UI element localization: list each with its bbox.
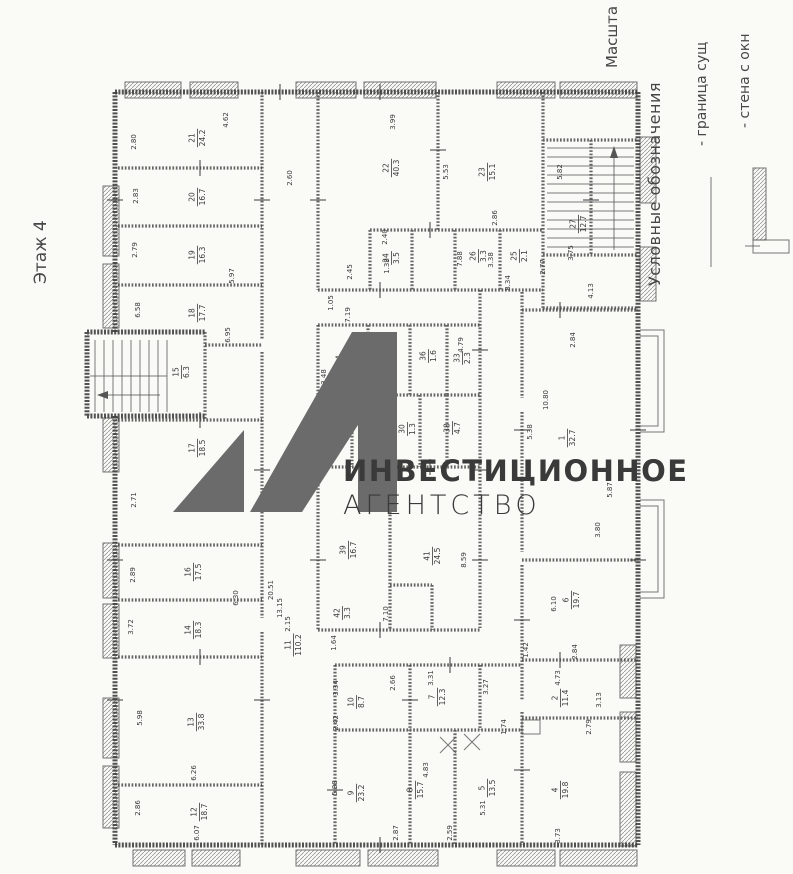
svg-text:12.3: 12.3 bbox=[438, 688, 447, 705]
dimension-label: 2.86 bbox=[491, 210, 499, 226]
room-label: 712.3 bbox=[428, 688, 448, 706]
dimension-label: 5.38 bbox=[526, 424, 534, 440]
room-label: 361.6 bbox=[419, 349, 439, 363]
dimension-label: 3.13 bbox=[595, 692, 603, 708]
room-label: 252.1 bbox=[510, 249, 530, 263]
dimension-label: 4.62 bbox=[222, 112, 230, 128]
room-label: 2016.7 bbox=[188, 188, 208, 206]
watermark-agency-subtitle: АГЕНТСТВО bbox=[343, 490, 541, 521]
svg-text:30: 30 bbox=[398, 424, 407, 434]
svg-text:5: 5 bbox=[478, 785, 487, 790]
svg-text:16.7: 16.7 bbox=[349, 541, 358, 558]
svg-text:17.7: 17.7 bbox=[198, 304, 207, 321]
dimension-label: 2.59 bbox=[446, 825, 454, 841]
dimension-label: 3.34 bbox=[332, 680, 340, 696]
svg-text:33: 33 bbox=[453, 353, 462, 363]
dimension-label: 2.66 bbox=[389, 675, 397, 691]
svg-text:39: 39 bbox=[339, 545, 348, 555]
dimension-label: 3.80 bbox=[594, 522, 602, 538]
dimension-label: 5.98 bbox=[136, 710, 144, 726]
dimension-label: 7.10 bbox=[382, 606, 390, 622]
dimension-label: 2.79 bbox=[585, 719, 593, 735]
svg-text:19.8: 19.8 bbox=[561, 781, 570, 798]
room-label: 263.3 bbox=[469, 249, 489, 263]
dimension-label: 2.84 bbox=[571, 644, 579, 660]
svg-text:16.7: 16.7 bbox=[198, 188, 207, 205]
dimension-label: 1.74 bbox=[500, 719, 508, 735]
svg-text:4.7: 4.7 bbox=[453, 422, 462, 434]
svg-text:2.3: 2.3 bbox=[463, 352, 472, 364]
room-label: 332.3 bbox=[453, 351, 473, 365]
svg-text:11.4: 11.4 bbox=[561, 689, 570, 706]
dimension-label: 3.38 bbox=[487, 252, 495, 268]
room-label: 156.3 bbox=[172, 365, 192, 379]
svg-text:6: 6 bbox=[562, 597, 571, 602]
dimension-label: 5.31 bbox=[479, 800, 487, 816]
dimension-label: 7.19 bbox=[344, 307, 352, 323]
svg-text:15.7: 15.7 bbox=[416, 781, 425, 798]
room-label: 419.8 bbox=[551, 781, 571, 799]
svg-text:17: 17 bbox=[188, 443, 197, 453]
dimension-label: 2.80 bbox=[130, 134, 138, 150]
dimension-label: 1.42 bbox=[522, 642, 530, 658]
room-label: 2124.2 bbox=[188, 129, 208, 147]
dimension-label: 3.72 bbox=[127, 619, 135, 635]
legend: Условные обозначения - граница сущ - сте… bbox=[645, 34, 789, 286]
svg-text:24.5: 24.5 bbox=[433, 547, 442, 564]
svg-text:14: 14 bbox=[184, 625, 193, 635]
dimension-label: 4.73 bbox=[554, 670, 562, 686]
svg-text:1.3: 1.3 bbox=[408, 423, 417, 435]
svg-text:3.3: 3.3 bbox=[343, 607, 352, 619]
svg-text:23: 23 bbox=[478, 167, 487, 177]
svg-text:13: 13 bbox=[187, 717, 196, 727]
svg-text:27: 27 bbox=[569, 219, 578, 229]
svg-text:18: 18 bbox=[188, 308, 197, 318]
dimension-label: 2.60 bbox=[286, 170, 294, 186]
svg-text:16.3: 16.3 bbox=[198, 246, 207, 263]
svg-text:2: 2 bbox=[551, 695, 560, 700]
dimension-label: 2.40 bbox=[381, 229, 389, 245]
dimension-label: 3.75 bbox=[567, 245, 575, 261]
dimension-label: 7.88 bbox=[456, 251, 464, 267]
room-label: 1218.7 bbox=[190, 803, 210, 821]
svg-text:18.5: 18.5 bbox=[198, 439, 207, 456]
room-label: 211.4 bbox=[551, 689, 571, 707]
svg-text:1.6: 1.6 bbox=[429, 350, 438, 362]
room-label: 301.3 bbox=[398, 422, 418, 436]
room-label: 108.7 bbox=[347, 695, 367, 709]
svg-text:23.2: 23.2 bbox=[357, 784, 366, 801]
svg-text:10: 10 bbox=[347, 697, 356, 707]
room-label: 815.7 bbox=[406, 781, 426, 799]
dimension-label: 2.86 bbox=[134, 800, 142, 816]
dimension-label: 6.10 bbox=[550, 596, 558, 612]
dimension-label: 13.15 bbox=[276, 598, 284, 618]
stair-direction-arrow bbox=[97, 391, 160, 399]
svg-text:15.1: 15.1 bbox=[488, 163, 497, 180]
dimension-label: 2.15 bbox=[284, 616, 292, 632]
room-label: 2315.1 bbox=[478, 163, 498, 181]
dimension-label: 3.27 bbox=[482, 679, 490, 695]
svg-text:19.7: 19.7 bbox=[572, 591, 581, 608]
room-label: 2712.7 bbox=[569, 215, 589, 233]
dimension-label: 6.58 bbox=[134, 302, 142, 318]
svg-text:15: 15 bbox=[172, 367, 181, 377]
dimension-label: 2.83 bbox=[132, 188, 140, 204]
svg-text:24.2: 24.2 bbox=[198, 129, 207, 146]
room-label: 423.3 bbox=[333, 606, 353, 620]
dimension-label: 5.82 bbox=[556, 164, 564, 180]
dimension-label: 1.05 bbox=[327, 295, 335, 311]
svg-text:11: 11 bbox=[284, 640, 293, 650]
svg-text:20: 20 bbox=[188, 192, 197, 202]
room-label: 619.7 bbox=[562, 591, 582, 609]
dimension-label: 2.87 bbox=[392, 825, 400, 841]
svg-text:26: 26 bbox=[469, 251, 478, 261]
floor-plan-canvas: 2.802.832.796.582.712.893.725.982.864.62… bbox=[0, 0, 793, 874]
room-label: 1817.7 bbox=[188, 304, 208, 322]
dimension-label: 3.73 bbox=[554, 828, 562, 844]
svg-text:21: 21 bbox=[188, 133, 197, 143]
room-label: 1333.8 bbox=[187, 713, 207, 731]
stair-treads bbox=[90, 340, 167, 412]
dimension-label: 5.53 bbox=[442, 164, 450, 180]
dimension-label: 2.45 bbox=[346, 264, 354, 280]
svg-text:1: 1 bbox=[558, 435, 567, 440]
dimension-label: 2.42 bbox=[332, 715, 340, 731]
room-label: 3916.7 bbox=[339, 541, 359, 559]
scanned-floor-plan-page: { "page": { "title": "Этаж 4", "scale_la… bbox=[0, 0, 793, 874]
stairwell-left bbox=[90, 340, 167, 412]
door-cross-marks bbox=[440, 734, 480, 753]
legend-item-wall-window: - стена с окн bbox=[737, 34, 753, 128]
svg-text:25: 25 bbox=[510, 251, 519, 261]
svg-text:8.7: 8.7 bbox=[357, 696, 366, 708]
legend-header: Условные обозначения bbox=[645, 82, 664, 286]
svg-text:3.3: 3.3 bbox=[479, 250, 488, 262]
svg-text:12: 12 bbox=[190, 807, 199, 817]
room-label: 2240.3 bbox=[382, 159, 402, 177]
dimension-label: 2.84 bbox=[569, 332, 577, 348]
svg-text:18.3: 18.3 bbox=[194, 621, 203, 638]
dimension-label: 6.26 bbox=[190, 765, 198, 781]
dimension-label: 5.38 bbox=[331, 780, 339, 796]
dimension-label: 10.80 bbox=[542, 390, 550, 410]
svg-text:36: 36 bbox=[419, 351, 428, 361]
dimension-label: 20.51 bbox=[267, 580, 275, 600]
svg-text:110.2: 110.2 bbox=[294, 634, 303, 656]
dimension-label: 4.79 bbox=[457, 337, 465, 353]
room-label: 1617.5 bbox=[184, 563, 204, 581]
dimension-label: 8.34 bbox=[504, 275, 512, 291]
stair-direction-arrow bbox=[610, 146, 618, 250]
dimension-label: 4.13 bbox=[587, 283, 595, 299]
dimension-label: 6.95 bbox=[224, 327, 232, 343]
svg-text:40.3: 40.3 bbox=[392, 159, 401, 176]
legend-symbols bbox=[711, 168, 789, 267]
dimension-label: 2.79 bbox=[131, 242, 139, 258]
room-label: 1718.5 bbox=[188, 439, 208, 457]
svg-text:33.8: 33.8 bbox=[197, 713, 206, 730]
dimension-label: 2.71 bbox=[130, 492, 138, 508]
svg-text:7: 7 bbox=[428, 694, 437, 699]
svg-text:4: 4 bbox=[551, 787, 560, 792]
svg-text:17.5: 17.5 bbox=[194, 563, 203, 580]
dimension-label: 1.64 bbox=[330, 635, 338, 651]
dimension-label: 6.30 bbox=[232, 590, 240, 606]
svg-text:2.1: 2.1 bbox=[520, 250, 529, 262]
svg-text:22: 22 bbox=[382, 163, 391, 173]
legend-item-boundary: - граница сущ bbox=[694, 42, 710, 146]
svg-text:38: 38 bbox=[443, 423, 452, 433]
scale-label: Масшта bbox=[603, 6, 621, 68]
room-label: 923.2 bbox=[347, 784, 367, 802]
svg-text:3.5: 3.5 bbox=[392, 252, 401, 264]
svg-text:32.7: 32.7 bbox=[568, 429, 577, 446]
dimension-label: 2.89 bbox=[129, 567, 137, 583]
svg-text:13.5: 13.5 bbox=[488, 779, 497, 796]
dimension-label: 4.83 bbox=[422, 762, 430, 778]
watermark-agency-name: ИНВЕСТИЦИОННОЕ bbox=[343, 454, 689, 488]
dimension-label: 5.97 bbox=[228, 268, 236, 284]
watermark-logo bbox=[173, 430, 244, 512]
svg-text:19: 19 bbox=[188, 250, 197, 260]
room-label: 1418.3 bbox=[184, 621, 204, 639]
room-label: 243.5 bbox=[382, 251, 402, 265]
svg-text:24: 24 bbox=[382, 253, 391, 263]
svg-text:42: 42 bbox=[333, 608, 342, 618]
svg-text:18.7: 18.7 bbox=[200, 803, 209, 820]
room-label: 4124.5 bbox=[423, 547, 443, 565]
floor-title: Этаж 4 bbox=[31, 220, 51, 284]
dimension-label: 8.59 bbox=[460, 552, 468, 568]
dimension-label: 6.07 bbox=[193, 825, 201, 841]
dimension-label: 3.31 bbox=[427, 670, 435, 686]
svg-text:6.3: 6.3 bbox=[182, 366, 191, 378]
svg-text:16: 16 bbox=[184, 567, 193, 577]
svg-text:9: 9 bbox=[347, 790, 356, 795]
svg-text:8: 8 bbox=[406, 787, 415, 792]
wall-with-window-symbol bbox=[745, 168, 789, 253]
room-label: 1916.3 bbox=[188, 246, 208, 264]
room-label: 513.5 bbox=[478, 779, 498, 797]
dimension-label: 2.77 bbox=[539, 259, 547, 275]
svg-text:41: 41 bbox=[423, 551, 432, 561]
dimension-label: 3.99 bbox=[389, 114, 397, 130]
room-label: 132.7 bbox=[558, 429, 578, 447]
room-label: 11110.2 bbox=[284, 634, 304, 657]
svg-text:12.7: 12.7 bbox=[579, 215, 588, 232]
